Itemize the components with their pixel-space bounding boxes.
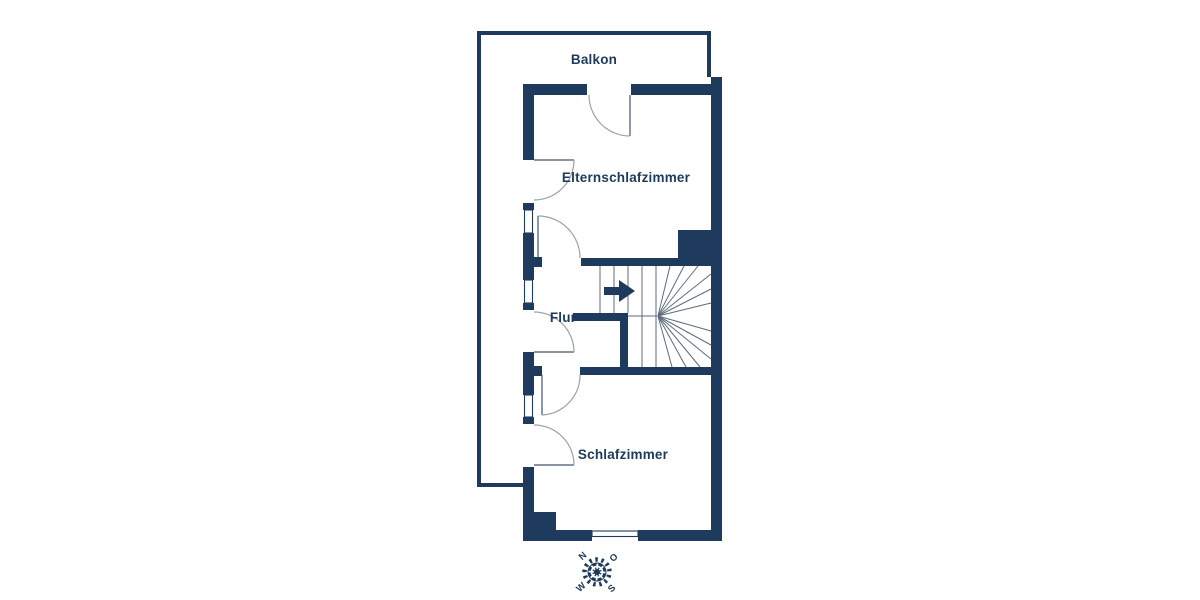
stair-direction-arrow-icon xyxy=(604,280,635,302)
compass-east-label: O xyxy=(608,551,621,564)
window-balcony-2 xyxy=(525,280,533,303)
window-south xyxy=(592,531,638,537)
door-flur-schlafzimmer xyxy=(542,375,580,415)
door-schlafzimmer-balcony xyxy=(534,425,574,465)
room-label-schlafzimmer: Schlafzimmer xyxy=(578,447,669,462)
door-elternschlafzimmer-balcony-top xyxy=(589,95,630,136)
doors xyxy=(534,95,630,465)
compass-north-label: N xyxy=(577,550,590,563)
room-label-elternschlafzimmer: Elternschlafzimmer xyxy=(562,170,691,185)
room-label-flur: Flur xyxy=(550,310,577,325)
window-balcony-3 xyxy=(525,395,533,417)
window-balcony-1 xyxy=(525,210,533,233)
exterior-walls xyxy=(523,77,722,541)
compass-rose-icon: N O S W xyxy=(560,535,635,600)
floorplan-svg: Balkon Elternschlafzimmer Flur Schlafzim… xyxy=(0,0,1200,600)
compass-south-label: S xyxy=(606,583,618,595)
compass-west-label: W xyxy=(574,580,588,594)
floorplan-canvas: Balkon Elternschlafzimmer Flur Schlafzim… xyxy=(0,0,1200,600)
door-flur-elternschlafzimmer xyxy=(538,216,580,258)
room-label-balkon: Balkon xyxy=(571,52,617,67)
